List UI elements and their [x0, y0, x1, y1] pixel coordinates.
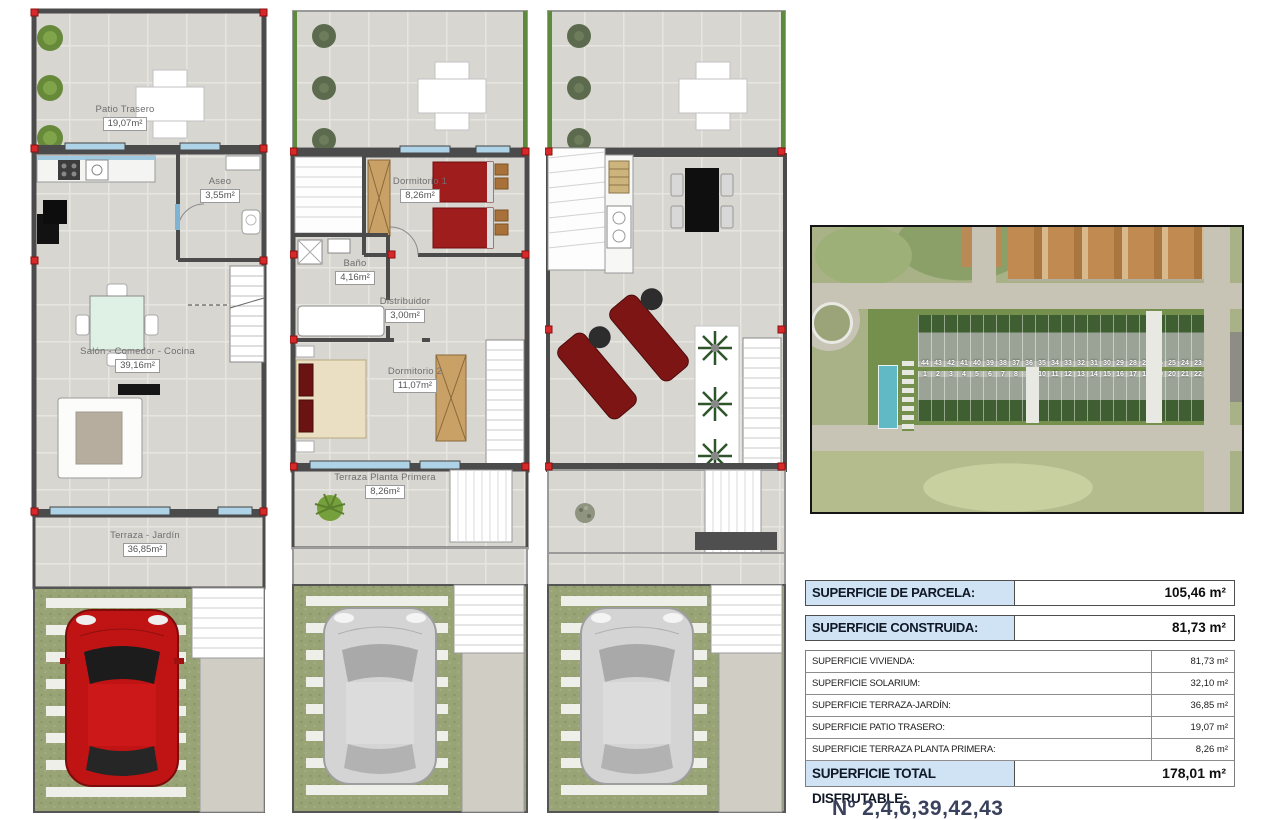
house-number: 23: [1191, 315, 1204, 367]
table-row-construida: SUPERFICIE CONSTRUIDA: 81,73 m²: [805, 615, 1235, 641]
row-label: SUPERFICIE DE PARCELA:: [806, 581, 1015, 605]
floor-plan-first: Dormitorio 1 8,26m² Baño 4,16m² Distribu…: [290, 8, 530, 815]
entry-steps: [711, 585, 782, 812]
pedestrian-path: [1146, 311, 1162, 423]
row-value: 81,73 m²: [1015, 616, 1234, 640]
house-number: 14: [1087, 371, 1100, 421]
table-row-total: SUPERFICIE TOTAL DISFRUTABLE: 178,01 m²: [806, 761, 1234, 786]
floor-plan-solarium: [545, 8, 788, 815]
house-number: 30: [1100, 315, 1113, 367]
table-row-parcela: SUPERFICIE DE PARCELA: 105,46 m²: [805, 580, 1235, 606]
house-number: 21: [1178, 371, 1191, 421]
road-right: [1204, 227, 1230, 512]
row-value: 19,07 m²: [1151, 717, 1234, 738]
house-number: 3: [944, 371, 957, 421]
table-row-vivienda: SUPERFICIE VIVIENDA: 81,73 m²: [806, 651, 1234, 673]
room-label-dormitorio1: Dormitorio 1 8,26m²: [360, 176, 480, 203]
hedge-edge: [293, 11, 297, 148]
entry-tiles: [548, 553, 785, 585]
house-number: 43: [931, 315, 944, 367]
house-number: 22: [1191, 371, 1204, 421]
house-number: 38: [996, 315, 1009, 367]
row-value: 81,73 m²: [1151, 651, 1234, 672]
hedge-edge: [781, 11, 785, 148]
table-row-terraza-planta-primera: SUPERFICIE TERRAZA PLANTA PRIMERA: 8,26 …: [806, 739, 1234, 761]
room-label-terraza-jardin: Terraza - Jardín 36,85m²: [50, 530, 240, 557]
house-number: 24: [1178, 315, 1191, 367]
house-number: 42: [944, 315, 957, 367]
house-number: 4: [957, 371, 970, 421]
pool-sunbeds: [902, 361, 914, 431]
house-number: 15: [1100, 371, 1113, 421]
neighboring-buildings: [1008, 227, 1204, 281]
red-car: [60, 610, 184, 786]
stairs: [486, 340, 524, 464]
hedge-edge: [523, 11, 527, 148]
house-number: 5: [970, 371, 983, 421]
table-row-patio-trasero: SUPERFICIE PATIO TRASERO: 19,07 m²: [806, 717, 1234, 739]
room-label-distribuidor: Distribuidor 3,00m²: [345, 296, 465, 323]
house-number: 44: [918, 315, 931, 367]
row-label: SUPERFICIE VIVIENDA:: [806, 651, 1151, 672]
small-plant: [575, 503, 595, 523]
house-number: 13: [1074, 371, 1087, 421]
house-number: 29: [1113, 315, 1126, 367]
stairs: [743, 338, 781, 466]
house-number: 34: [1048, 315, 1061, 367]
palm-planter: [695, 326, 739, 470]
row-label: SUPERFICIE CONSTRUIDA:: [806, 616, 1015, 640]
road-vertical: [972, 227, 996, 283]
house-number: 35: [1035, 315, 1048, 367]
patio-plants: [37, 25, 63, 151]
topiary-plants: [312, 24, 336, 152]
first-floor-drawing: [290, 8, 530, 815]
stairwell: [548, 148, 605, 270]
entry-steps: [192, 588, 264, 812]
gray-car: [581, 608, 693, 784]
row-label: SUPERFICIE TERRAZA PLANTA PRIMERA:: [806, 739, 1151, 760]
summer-kitchen: [605, 155, 633, 273]
house-number: 16: [1113, 371, 1126, 421]
house-number: 33: [1061, 315, 1074, 367]
house-number: 39: [983, 315, 996, 367]
unit-numbers-label: Nº 2,4,6,39,42,43: [832, 797, 1003, 820]
empty-field: [812, 451, 1204, 512]
pedestrian-path: [1026, 367, 1039, 423]
house-number: 7: [996, 371, 1009, 421]
lower-terrace: [293, 548, 527, 585]
house-number: 32: [1074, 315, 1087, 367]
sofa: [58, 398, 142, 478]
room-label-bano: Baño 4,16m²: [310, 258, 400, 285]
house-number: 36: [1022, 315, 1035, 367]
room-label-salon: Salón - Comedor - Cocina 39,16m²: [55, 346, 220, 373]
house-number: 17: [1126, 371, 1139, 421]
topiary-plants: [567, 24, 591, 152]
floor-plan-ground: Patio Trasero 19,07m² Aseo 3,55m² Salón …: [30, 8, 268, 815]
stairs: [230, 266, 264, 362]
wall: [548, 463, 785, 470]
road-bottom: [812, 425, 1242, 451]
table-row-terraza-jardin: SUPERFICIE TERRAZA-JARDÍN: 36,85 m²: [806, 695, 1234, 717]
house-number: 37: [1009, 315, 1022, 367]
brochure-page: Patio Trasero 19,07m² Aseo 3,55m² Salón …: [0, 0, 1280, 820]
row-label: SUPERFICIE TOTAL DISFRUTABLE:: [806, 761, 1015, 786]
fireplace: [43, 200, 67, 224]
stairwell: [295, 157, 363, 233]
row-value: 105,46 m²: [1015, 581, 1234, 605]
entry-steps: [454, 585, 524, 812]
row-value: 32,10 m²: [1151, 673, 1234, 694]
room-label-aseo: Aseo 3,55m²: [180, 176, 260, 203]
wall: [605, 148, 785, 155]
tv-sideboard: [118, 384, 160, 395]
table-row-solarium: SUPERFICIE SOLARIUM: 32,10 m²: [806, 673, 1234, 695]
aerial-site-map: 4443424140393837363534333231302928272625…: [810, 225, 1244, 514]
doormat: [695, 532, 777, 550]
house-number: 12: [1061, 371, 1074, 421]
community-pool: [878, 365, 898, 429]
row-value: 8,26 m²: [1151, 739, 1234, 760]
surface-table: SUPERFICIE DE PARCELA: 105,46 m² SUPERFI…: [805, 580, 1235, 787]
row-value: 178,01 m²: [1015, 761, 1234, 786]
house-number: 28: [1126, 315, 1139, 367]
edge-building: [1230, 332, 1242, 402]
house-number: 25: [1165, 315, 1178, 367]
house-number: 20: [1165, 371, 1178, 421]
road-top: [812, 283, 1242, 309]
house-number: 1: [918, 371, 931, 421]
room-label-terraza-planta-primera: Terraza Planta Primera 8,26m²: [305, 472, 465, 499]
house-number: 31: [1087, 315, 1100, 367]
room-label-patio-trasero: Patio Trasero 19,07m²: [60, 104, 190, 131]
solarium-drawing: [545, 8, 788, 815]
house-number: 6: [983, 371, 996, 421]
room-label-dormitorio2: Dormitorio 2 11,07m²: [355, 366, 475, 393]
house-number: 2: [931, 371, 944, 421]
table-details: SUPERFICIE VIVIENDA: 81,73 m² SUPERFICIE…: [805, 650, 1235, 787]
row-label: SUPERFICIE SOLARIUM:: [806, 673, 1151, 694]
house-number: 11: [1048, 371, 1061, 421]
house-number: 8: [1009, 371, 1022, 421]
house-number: 41: [957, 315, 970, 367]
house-number: 40: [970, 315, 983, 367]
housing-complex: 4443424140393837363534333231302928272625…: [868, 309, 1204, 425]
hedge-edge: [548, 11, 552, 148]
row-label: SUPERFICIE PATIO TRASERO:: [806, 717, 1151, 738]
row-label: SUPERFICIE TERRAZA-JARDÍN:: [806, 695, 1151, 716]
gray-car: [324, 608, 436, 784]
row-value: 36,85 m²: [1151, 695, 1234, 716]
